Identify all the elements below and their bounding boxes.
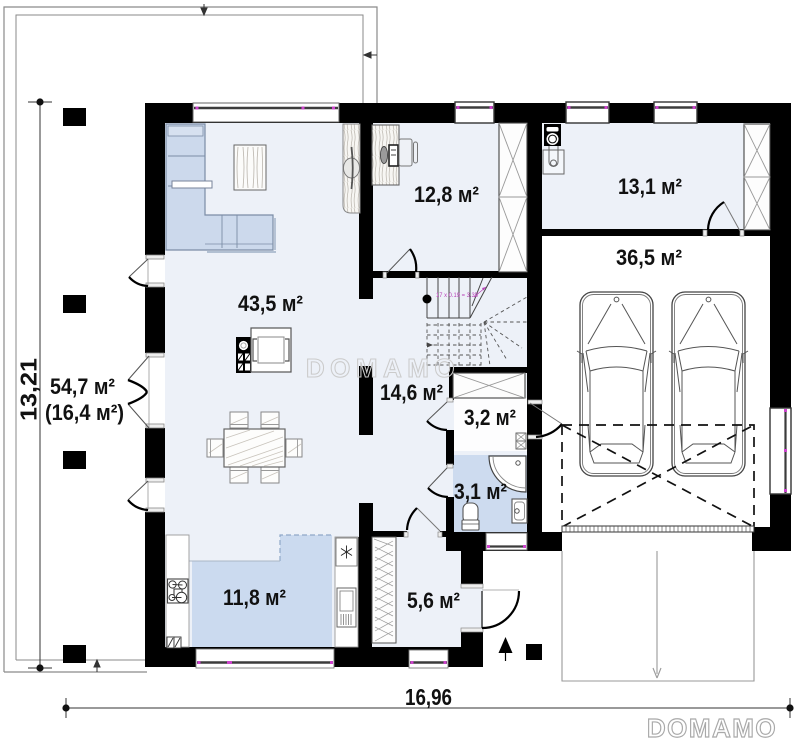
svg-text:DOMAMO: DOMAMO <box>306 353 460 383</box>
svg-text:36,5 м²: 36,5 м² <box>616 245 682 270</box>
svg-text:DOMAMO: DOMAMO <box>647 713 777 740</box>
svg-text:14,6 м²: 14,6 м² <box>380 380 443 405</box>
svg-text:43,5 м²: 43,5 м² <box>238 291 303 316</box>
svg-text:13,1 м²: 13,1 м² <box>618 174 682 199</box>
svg-text:12,8 м²: 12,8 м² <box>414 182 479 207</box>
svg-text:(16,4 м²): (16,4 м²) <box>45 400 124 425</box>
svg-text:5,6 м²: 5,6 м² <box>407 588 460 613</box>
svg-text:11,8 м²: 11,8 м² <box>223 585 286 610</box>
svg-text:54,7 м²: 54,7 м² <box>50 374 115 399</box>
svg-text:17 x 0.19 = 3.35: 17 x 0.19 = 3.35 <box>436 292 478 299</box>
svg-text:13,21: 13,21 <box>16 358 42 421</box>
svg-text:3,2 м²: 3,2 м² <box>464 405 516 430</box>
svg-text:16,96: 16,96 <box>405 684 452 710</box>
svg-text:3,1 м²: 3,1 м² <box>454 479 507 504</box>
